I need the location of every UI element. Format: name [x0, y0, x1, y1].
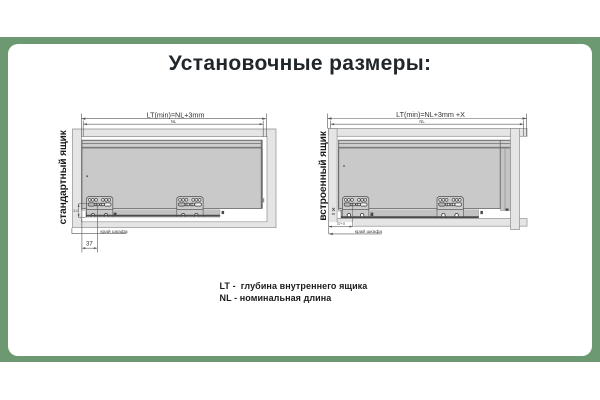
- svg-text:LT(min)=NL+3mm: LT(min)=NL+3mm: [147, 110, 205, 119]
- svg-text:37+X: 37+X: [337, 222, 346, 226]
- svg-text:NL: NL: [171, 119, 177, 124]
- svg-text:NL: NL: [419, 119, 425, 124]
- svg-text:встроенный ящик: встроенный ящик: [318, 130, 329, 220]
- svg-text:край шкафа: край шкафа: [100, 228, 128, 235]
- svg-text:3.0: 3.0: [73, 209, 78, 213]
- svg-text:край шкафа: край шкафа: [355, 228, 383, 235]
- svg-text:стандартный ящик: стандартный ящик: [58, 129, 69, 224]
- svg-text:37: 37: [86, 241, 93, 247]
- svg-text:LT(min)=NL+3mm +X: LT(min)=NL+3mm +X: [396, 110, 465, 119]
